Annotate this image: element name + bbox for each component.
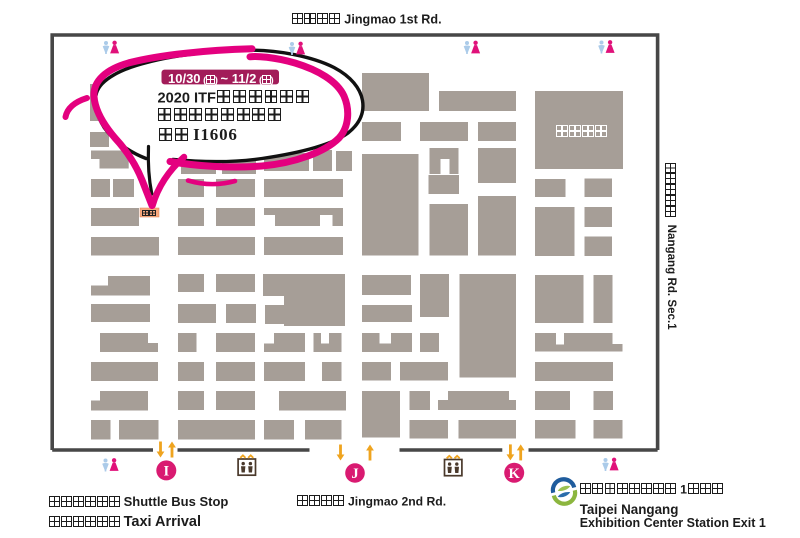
svg-text:I: I xyxy=(163,464,169,480)
svg-text:J: J xyxy=(351,466,358,482)
svg-text:K: K xyxy=(509,466,521,482)
